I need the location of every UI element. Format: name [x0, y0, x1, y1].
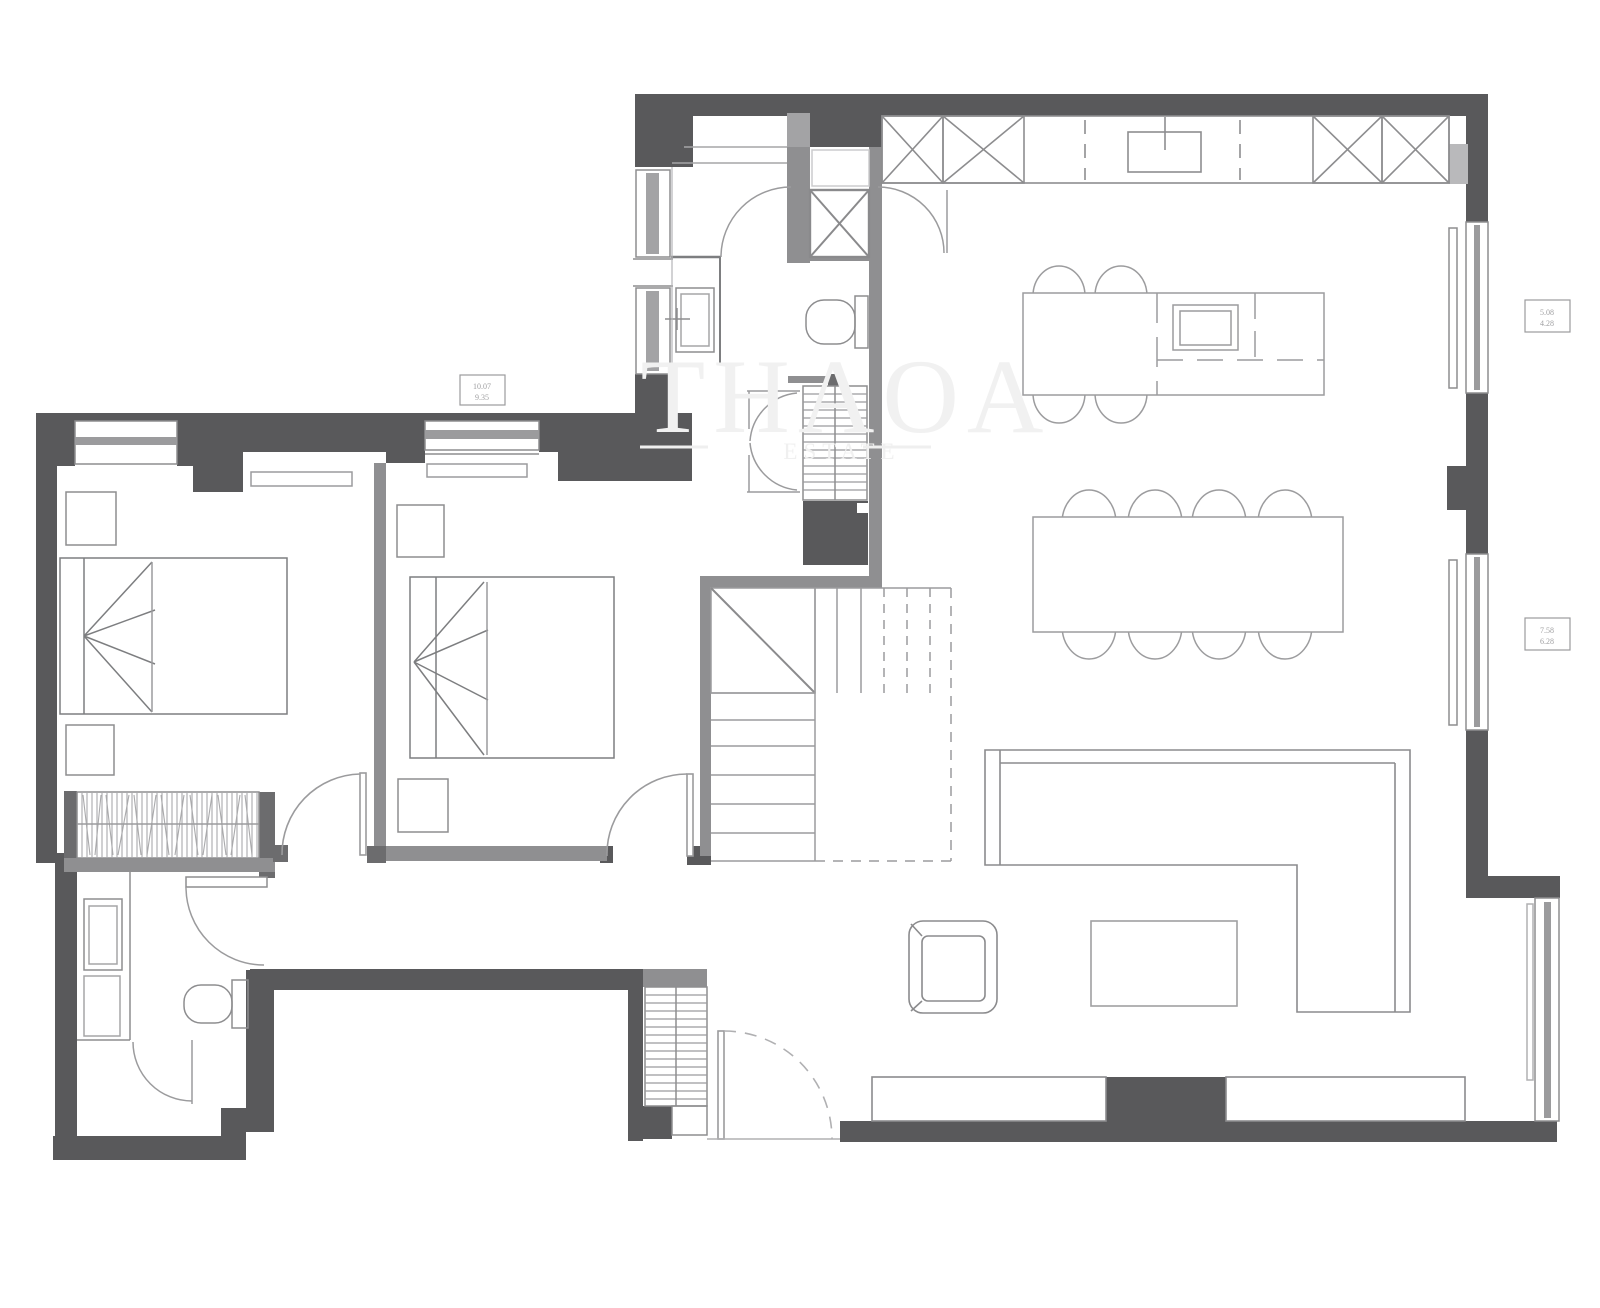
svg-text:THAOA: THAOA: [641, 338, 1052, 455]
svg-text:ESTATE: ESTATE: [783, 439, 900, 464]
svg-text:6.28: 6.28: [1540, 637, 1554, 646]
svg-text:7.58: 7.58: [1540, 626, 1554, 635]
svg-text:9.35: 9.35: [475, 393, 489, 402]
svg-text:4.28: 4.28: [1540, 319, 1554, 328]
svg-text:10.07: 10.07: [473, 382, 491, 391]
svg-text:5.08: 5.08: [1540, 308, 1554, 317]
